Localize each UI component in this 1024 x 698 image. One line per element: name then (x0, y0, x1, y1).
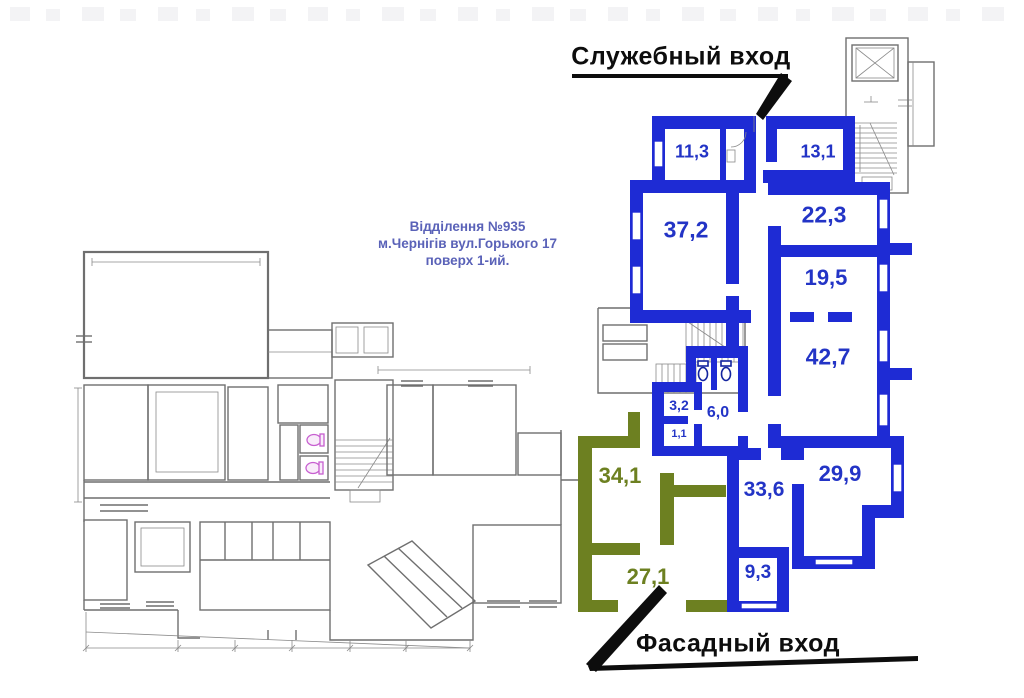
facade-entrance-label: Фасадный вход (636, 630, 840, 659)
branch-info-block: Відділення №935 м.Чернігів вул.Горького … (355, 218, 580, 269)
room-label-34-1: 34,1 (599, 463, 642, 489)
room-label-6-0: 6,0 (707, 404, 729, 422)
room-label-3-2: 3,2 (669, 397, 688, 413)
room-label-1-1: 1,1 (671, 428, 686, 440)
room-label-33-6: 33,6 (744, 478, 785, 502)
floor-plan-canvas: Служебный вход Фасадный вход Відділення … (0, 0, 1024, 698)
room-label-11-3: 11,3 (675, 142, 709, 163)
service-entrance-label: Служебный вход (571, 43, 790, 72)
branch-info-line2: м.Чернігів вул.Горького 17 (355, 235, 580, 252)
room-label-13-1: 13,1 (800, 142, 835, 163)
room-label-42-7: 42,7 (806, 344, 851, 371)
elevator-stairs-block (846, 38, 934, 193)
room-label-9-3: 9,3 (745, 562, 771, 584)
room-label-37-2: 37,2 (664, 217, 709, 244)
room-label-29-9: 29,9 (819, 461, 862, 487)
dimension-lines (74, 388, 473, 652)
branch-info-line1: Відділення №935 (355, 218, 580, 235)
facade-entrance-arrow (586, 585, 918, 672)
diamond-rooms (368, 541, 475, 628)
service-entrance-arrow (572, 73, 792, 120)
room-label-22-3: 22,3 (802, 202, 847, 229)
stairs-icon (335, 380, 393, 502)
watermark-strip (10, 7, 1004, 21)
elevator-shaft-icon (852, 45, 898, 81)
room-label-19-5: 19,5 (805, 265, 848, 291)
room-label-27-1: 27,1 (627, 564, 670, 590)
left-wing-plan (74, 252, 578, 652)
branch-info-line3: поверх 1-ий. (355, 252, 580, 269)
stairs-icon (853, 123, 897, 190)
toilet-icon (306, 434, 324, 474)
floor-plan-drawing (0, 0, 1024, 698)
